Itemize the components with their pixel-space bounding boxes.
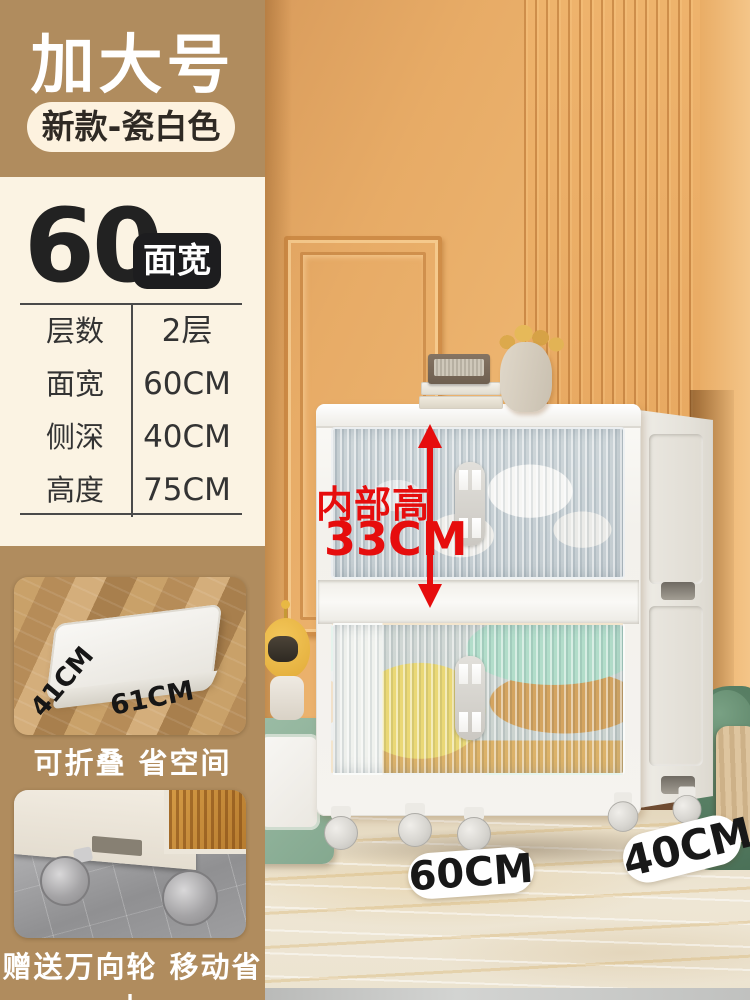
table-row: 侧深 40CM <box>20 411 242 464</box>
spec-value: 2层 <box>132 305 242 358</box>
spec-label: 面宽 <box>20 358 130 411</box>
variant-badge: 新款-瓷白色 <box>27 102 235 152</box>
side-recess-top <box>649 434 703 584</box>
toy-antenna-ball <box>281 600 290 609</box>
spec-table: 层数 2层 面宽 60CM 侧深 40CM 高度 75CM <box>20 303 242 515</box>
spec-value: 75CM <box>132 464 242 517</box>
table-row: 层数 2层 <box>20 305 242 358</box>
inner-height-value: 33CM <box>324 512 444 566</box>
front-width-pill: 60CM <box>407 846 536 901</box>
spec-value: 60CM <box>132 358 242 411</box>
cabinet-middle-band <box>318 580 639 624</box>
measure-arrow-up-icon <box>418 424 442 448</box>
vintage-radio <box>428 354 490 384</box>
caster-wheel <box>606 792 640 833</box>
wheels-product-photo <box>14 790 246 938</box>
book <box>419 396 503 409</box>
spec-panel: 60 面宽 层数 2层 面宽 60CM 侧深 40CM 高度 75CM <box>0 177 265 546</box>
spec-label: 侧深 <box>20 411 130 464</box>
folded-product-photo: 41CM 61CM <box>14 577 246 735</box>
side-recess-bottom <box>649 606 703 766</box>
nightstand-drawer <box>258 734 320 830</box>
table-row: 面宽 60CM <box>20 358 242 411</box>
floor-strip <box>262 988 750 1000</box>
page-title: 加大号 <box>0 14 265 106</box>
caster-wheel-closeup <box>162 870 218 926</box>
side-handle-slot-top <box>661 582 695 600</box>
features-panel: 41CM 61CM 可折叠 省空间 赠送万向轮 移动省力 <box>0 546 265 1000</box>
measure-arrow-down-icon <box>418 584 442 608</box>
robot-toy-face <box>268 636 298 662</box>
caster-wheel <box>396 803 434 849</box>
amber-content-closeup <box>164 790 246 854</box>
stacked-books <box>421 382 501 410</box>
caster-wheel-closeup <box>40 856 90 906</box>
table-row: 高度 75CM <box>20 464 242 517</box>
product-infographic: 内部高 33CM 60CM 40CM 加大号 新款-瓷白色 60 面宽 层数 2… <box>0 0 750 1000</box>
caster-wheel <box>322 806 360 852</box>
caster-wheel <box>455 807 493 853</box>
width-unit-badge: 面宽 <box>133 233 221 289</box>
spec-value: 40CM <box>132 411 242 464</box>
wheels-feature-caption: 赠送万向轮 移动省力 <box>0 944 265 1000</box>
cabinet-side-panel <box>639 410 713 808</box>
door-handle-bottom <box>455 656 485 740</box>
radio-grille <box>434 359 484 376</box>
fold-feature-caption: 可折叠 省空间 <box>0 740 265 782</box>
robot-toy-body <box>270 676 304 720</box>
header-panel: 加大号 新款-瓷白色 <box>0 0 265 177</box>
spec-label: 层数 <box>20 305 130 358</box>
head-vase <box>500 342 552 412</box>
spec-label: 高度 <box>20 464 130 517</box>
